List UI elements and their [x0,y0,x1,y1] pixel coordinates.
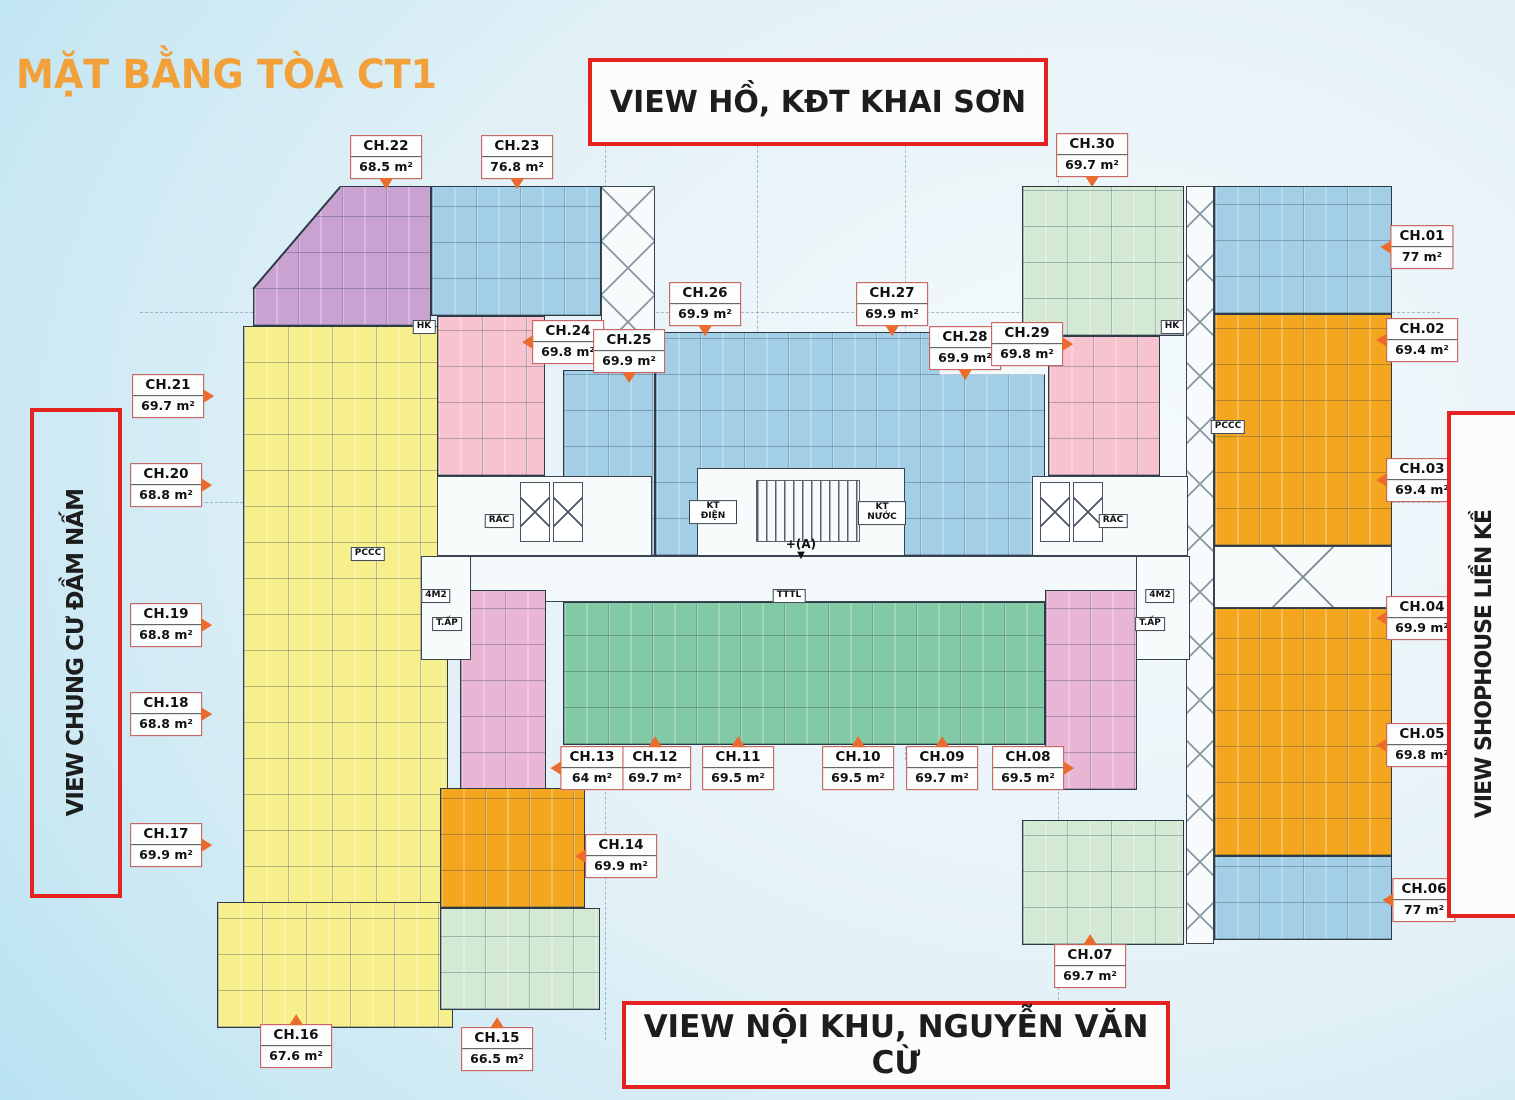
unit-label-ch23: CH.2376.8 m² [481,135,553,179]
unit-number: CH.30 [1057,136,1127,155]
block-ch29 [1048,336,1160,476]
unit-number: CH.06 [1393,881,1454,900]
unit-number: CH.17 [131,826,201,845]
unit-number: CH.18 [131,695,201,714]
plan-label-m4-left: 4M2 [421,589,450,603]
unit-pointer-left-icon [522,335,533,349]
block-ch14 [440,788,585,908]
plan-label-rac-right: RÁC [1099,514,1128,528]
unit-area: 69.7 m² [915,770,969,786]
unit-pointer-left-icon [1376,611,1387,625]
unit-label-ch15: CH.1566.5 m² [461,1027,533,1071]
plan-label-axis-a: +(A) [783,537,819,561]
unit-pointer-left-icon [1376,738,1387,752]
unit-label-ch13: CH.1364 m² [560,746,623,790]
plan-label-rac-left: RÁC [485,514,514,528]
view-label-left-text: VIEW CHUNG CƯ ĐẦM NẤM [63,489,89,816]
unit-label-ch30: CH.3069.7 m² [1056,133,1128,177]
unit-pointer-right-icon [1063,761,1074,775]
unit-area: 68.8 m² [139,627,193,643]
unit-pointer-right-icon [1062,337,1073,351]
unit-number: CH.07 [1055,947,1125,966]
unit-label-ch09: CH.0969.7 m² [906,746,978,790]
unit-label-ch01: CH.0177 m² [1390,225,1453,269]
unit-number: CH.12 [620,749,690,768]
lift-shaft [1073,482,1103,542]
lobby-right [1136,556,1190,660]
lift-shaft [1040,482,1070,542]
unit-area: 69.7 m² [1065,157,1119,173]
unit-pointer-up-icon [1083,934,1097,945]
plan-label-hk-left: HK [413,320,436,334]
unit-number: CH.26 [670,285,740,304]
view-label-bottom-text: VIEW NỘI KHU, NGUYỄN VĂN CỪ [626,1009,1166,1081]
unit-pointer-up-icon [935,736,949,747]
unit-label-ch14: CH.1469.9 m² [585,834,657,878]
view-label-right-text: VIEW SHOPHOUSE LIỀN KỀ [1472,510,1497,818]
plan-label-tap-right: T.ẤP [1135,617,1165,631]
block-ch30 [1022,186,1184,336]
unit-area: 68.8 m² [139,716,193,732]
unit-area: 69.9 m² [678,306,732,322]
unit-pointer-down-icon [885,325,899,336]
unit-number: CH.13 [561,749,622,768]
view-label-left: VIEW CHUNG CƯ ĐẦM NẤM [30,408,122,898]
unit-area: 69.8 m² [541,344,595,360]
plan-label-pccc-right: PCCC [1211,420,1245,434]
unit-area: 76.8 m² [490,159,544,175]
unit-area: 69.4 m² [1395,342,1449,358]
unit-number: CH.01 [1391,228,1452,247]
view-label-bottom: VIEW NỘI KHU, NGUYỄN VĂN CỪ [622,1001,1170,1089]
unit-area: 69.8 m² [1395,747,1449,763]
unit-number: CH.22 [351,138,421,157]
unit-area: 69.5 m² [711,770,765,786]
plan-label-m4-right: 4M2 [1145,589,1174,603]
unit-number: CH.10 [823,749,893,768]
unit-area: 64 m² [569,770,614,786]
unit-area: 69.5 m² [1001,770,1055,786]
unit-label-ch25: CH.2569.9 m² [593,329,665,373]
unit-area: 69.9 m² [865,306,919,322]
plan-label-tttl: TTTL [773,589,806,603]
unit-pointer-right-icon [203,389,214,403]
unit-number: CH.08 [993,749,1063,768]
lobby-left [421,556,471,660]
block-ch16 [217,902,453,1028]
unit-label-ch17: CH.1769.9 m² [130,823,202,867]
unit-label-ch07: CH.0769.7 m² [1054,944,1126,988]
unit-pointer-down-icon [958,369,972,380]
block-ch06 [1214,856,1392,940]
unit-label-ch27: CH.2769.9 m² [856,282,928,326]
unit-area: 69.7 m² [1063,968,1117,984]
view-label-top: VIEW HỒ, KĐT KHAI SƠN [588,58,1048,146]
plan-label-kt-nuoc: KT NƯỚC [858,501,906,525]
unit-label-ch21: CH.2169.7 m² [132,374,204,418]
unit-number: CH.11 [703,749,773,768]
unit-label-ch28: CH.2869.9 m² [929,326,1001,370]
unit-area: 69.9 m² [938,350,992,366]
unit-number: CH.19 [131,606,201,625]
unit-area: 67.6 m² [269,1048,323,1064]
block-orange-lower [1214,608,1392,856]
unit-number: CH.29 [992,325,1062,344]
block-ch13 [460,590,546,790]
unit-pointer-left-icon [575,849,586,863]
block-yellow-wing [243,326,448,904]
unit-number: CH.27 [857,285,927,304]
unit-label-ch18: CH.1868.8 m² [130,692,202,736]
unit-area: 69.4 m² [1395,482,1449,498]
unit-area: 69.9 m² [594,858,648,874]
unit-area: 68.5 m² [359,159,413,175]
block-ch23 [431,186,601,316]
unit-pointer-up-icon [731,736,745,747]
unit-label-ch26: CH.2669.9 m² [669,282,741,326]
unit-number: CH.20 [131,466,201,485]
unit-area: 69.8 m² [1000,346,1054,362]
unit-area: 69.7 m² [141,398,195,414]
unit-number: CH.23 [482,138,552,157]
unit-pointer-down-icon [1085,176,1099,187]
unit-number: CH.16 [261,1027,331,1046]
unit-pointer-up-icon [648,736,662,747]
unit-pointer-up-icon [289,1014,303,1025]
unit-area: 68.8 m² [139,487,193,503]
unit-pointer-down-icon [510,178,524,189]
unit-number: CH.28 [930,329,1000,348]
unit-label-ch19: CH.1968.8 m² [130,603,202,647]
unit-pointer-left-icon [1376,473,1387,487]
unit-label-ch08: CH.0869.5 m² [992,746,1064,790]
unit-pointer-down-icon [622,372,636,383]
unit-label-ch29: CH.2969.8 m² [991,322,1063,366]
unit-area: 69.7 m² [628,770,682,786]
floor-plan-page: MẶT BẰNG TÒA CT1 VIEW HỒ, KĐT KHAI SƠN V… [0,0,1515,1100]
unit-area: 69.9 m² [139,847,193,863]
plan-label-kt-dien: KT ĐIỆN [689,500,737,524]
plan-label-pccc-left: PCCC [351,547,385,561]
unit-pointer-left-icon [1376,333,1387,347]
gap-right-wing [1214,546,1392,608]
block-ch15 [440,908,600,1010]
unit-number: CH.02 [1387,321,1457,340]
unit-label-ch22: CH.2268.5 m² [350,135,422,179]
plan-label-hk-right: HK [1161,320,1184,334]
block-green-central [563,602,1045,745]
unit-label-ch11: CH.1169.5 m² [702,746,774,790]
plan-label-tap-left: T.ẤP [432,617,462,631]
view-label-top-text: VIEW HỒ, KĐT KHAI SƠN [610,85,1026,120]
view-label-right: VIEW SHOPHOUSE LIỀN KỀ [1447,411,1515,918]
unit-number: CH.15 [462,1030,532,1049]
shaft-right [1186,186,1214,944]
unit-area: 69.5 m² [831,770,885,786]
unit-label-ch16: CH.1667.6 m² [260,1024,332,1068]
unit-label-ch20: CH.2068.8 m² [130,463,202,507]
unit-pointer-left-icon [1380,240,1391,254]
block-ch07 [1022,820,1184,945]
unit-area: 69.9 m² [602,353,656,369]
unit-pointer-right-icon [201,618,212,632]
unit-pointer-left-icon [550,761,561,775]
unit-number: CH.09 [907,749,977,768]
block-ch01 [1214,186,1392,314]
unit-label-ch12: CH.1269.7 m² [619,746,691,790]
unit-pointer-left-icon [1382,893,1393,907]
unit-area: 69.9 m² [1395,620,1449,636]
unit-area: 77 m² [1399,249,1444,265]
lift-shaft [520,482,550,542]
unit-pointer-up-icon [490,1017,504,1028]
unit-pointer-down-icon [698,325,712,336]
stairs [756,480,860,542]
unit-label-ch10: CH.1069.5 m² [822,746,894,790]
unit-number: CH.14 [586,837,656,856]
unit-area: 77 m² [1401,902,1446,918]
unit-area: 66.5 m² [470,1051,524,1067]
unit-number: CH.25 [594,332,664,351]
unit-pointer-down-icon [379,178,393,189]
lift-shaft [553,482,583,542]
unit-pointer-right-icon [201,707,212,721]
unit-number: CH.21 [133,377,203,396]
page-title: MẶT BẰNG TÒA CT1 [16,52,437,98]
unit-pointer-right-icon [201,478,212,492]
unit-pointer-up-icon [851,736,865,747]
unit-pointer-right-icon [201,838,212,852]
unit-label-ch02: CH.0269.4 m² [1386,318,1458,362]
